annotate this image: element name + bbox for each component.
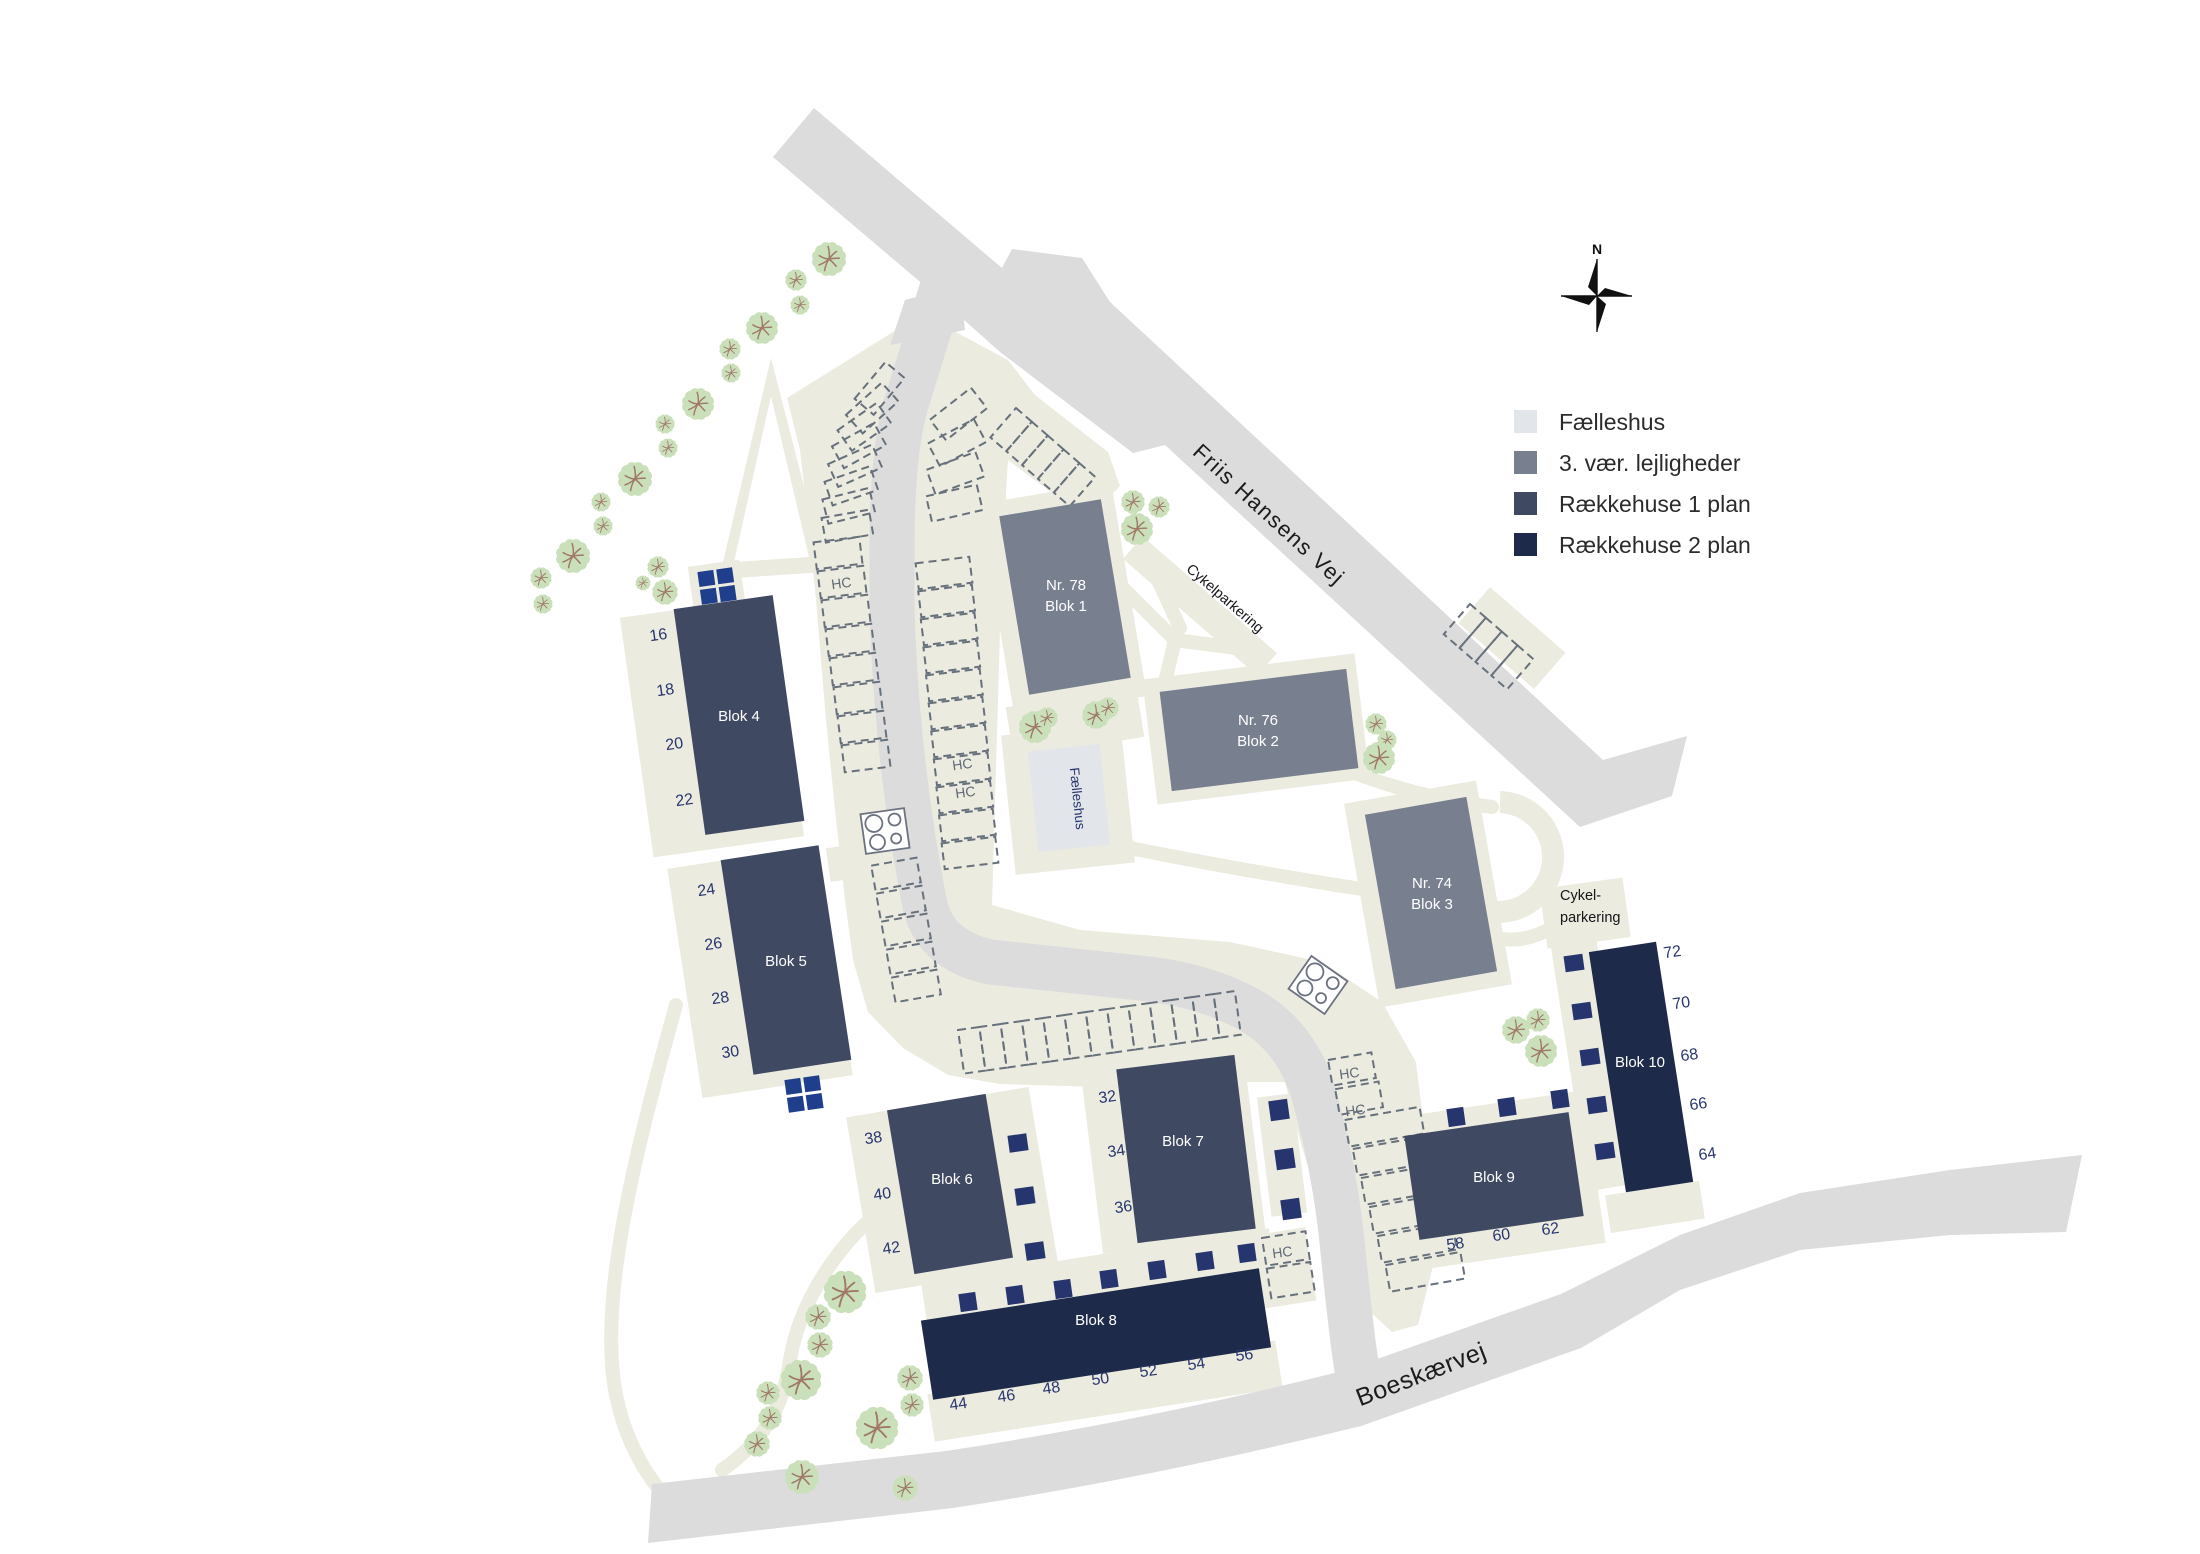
svg-text:HC: HC <box>830 574 852 593</box>
svg-text:Blok 3: Blok 3 <box>1411 896 1453 913</box>
svg-text:66: 66 <box>1688 1095 1708 1114</box>
svg-text:N: N <box>1592 241 1602 257</box>
svg-text:64: 64 <box>1697 1145 1717 1164</box>
svg-text:Blok 6: Blok 6 <box>931 1171 973 1188</box>
svg-text:Blok 7: Blok 7 <box>1162 1133 1204 1150</box>
svg-text:60: 60 <box>1491 1226 1511 1245</box>
svg-text:28: 28 <box>710 989 730 1008</box>
svg-text:16: 16 <box>648 626 668 645</box>
svg-text:HC: HC <box>1338 1064 1360 1083</box>
svg-text:40: 40 <box>872 1185 892 1204</box>
svg-text:Blok 9: Blok 9 <box>1473 1169 1515 1186</box>
svg-text:46: 46 <box>996 1387 1016 1406</box>
svg-text:18: 18 <box>655 681 675 700</box>
svg-text:42: 42 <box>881 1239 901 1258</box>
svg-text:Cykel-: Cykel- <box>1560 888 1601 904</box>
svg-text:Blok 2: Blok 2 <box>1237 733 1279 750</box>
svg-text:Blok 10: Blok 10 <box>1615 1054 1665 1071</box>
svg-text:68: 68 <box>1679 1046 1699 1065</box>
svg-text:70: 70 <box>1671 994 1691 1013</box>
svg-text:HC: HC <box>1271 1243 1293 1262</box>
svg-text:3. vær. lejligheder: 3. vær. lejligheder <box>1559 450 1741 476</box>
svg-text:HC: HC <box>954 783 976 802</box>
svg-text:Fælleshus: Fælleshus <box>1559 409 1665 435</box>
svg-text:34: 34 <box>1106 1142 1126 1161</box>
svg-text:HC: HC <box>1344 1101 1366 1120</box>
svg-text:Rækkehuse 2 plan: Rækkehuse 2 plan <box>1559 532 1751 558</box>
svg-text:72: 72 <box>1662 943 1682 962</box>
svg-text:50: 50 <box>1090 1370 1110 1389</box>
svg-text:54: 54 <box>1186 1355 1206 1374</box>
svg-text:20: 20 <box>664 735 684 754</box>
svg-text:26: 26 <box>703 935 723 954</box>
svg-text:24: 24 <box>696 881 716 900</box>
svg-text:48: 48 <box>1041 1379 1061 1398</box>
svg-text:Nr. 74: Nr. 74 <box>1412 875 1452 892</box>
svg-text:Blok 8: Blok 8 <box>1075 1312 1117 1329</box>
svg-text:44: 44 <box>948 1395 968 1414</box>
svg-text:62: 62 <box>1540 1220 1560 1239</box>
svg-text:Nr. 78: Nr. 78 <box>1046 577 1086 594</box>
svg-text:HC: HC <box>951 755 973 774</box>
svg-text:22: 22 <box>674 791 694 810</box>
svg-text:Nr. 76: Nr. 76 <box>1238 712 1278 729</box>
svg-text:Blok 5: Blok 5 <box>765 953 807 970</box>
svg-text:32: 32 <box>1097 1088 1117 1107</box>
svg-text:52: 52 <box>1138 1362 1158 1381</box>
svg-text:Blok 4: Blok 4 <box>718 708 760 725</box>
svg-text:Rækkehuse 1 plan: Rækkehuse 1 plan <box>1559 491 1751 517</box>
svg-text:Blok 1: Blok 1 <box>1045 598 1087 615</box>
svg-text:30: 30 <box>720 1043 740 1062</box>
svg-text:36: 36 <box>1113 1198 1133 1217</box>
svg-text:38: 38 <box>863 1129 883 1148</box>
svg-text:58: 58 <box>1445 1235 1465 1254</box>
svg-text:parkering: parkering <box>1560 910 1620 926</box>
svg-text:56: 56 <box>1234 1346 1254 1365</box>
